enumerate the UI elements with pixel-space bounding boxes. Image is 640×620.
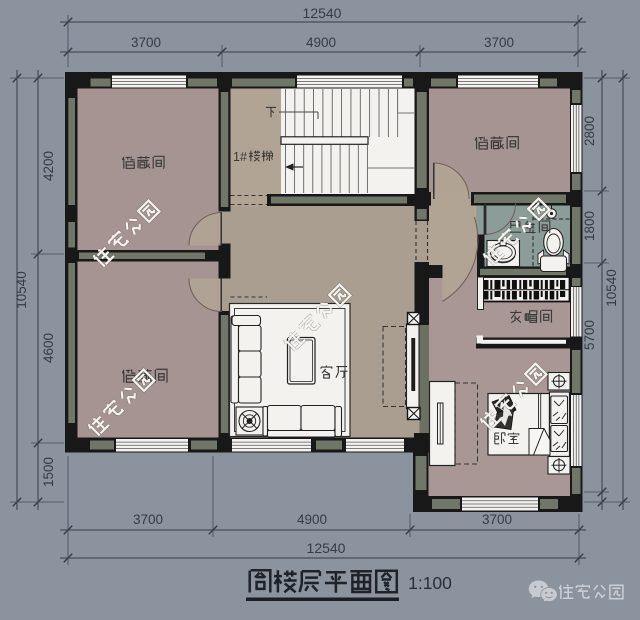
- svg-text:5700: 5700: [582, 320, 597, 350]
- svg-text:3700: 3700: [131, 35, 161, 50]
- svg-text:1500: 1500: [41, 457, 56, 487]
- svg-text:10540: 10540: [14, 271, 29, 309]
- svg-text:3700: 3700: [484, 35, 514, 50]
- svg-text:2800: 2800: [582, 116, 597, 146]
- svg-text:4600: 4600: [41, 333, 56, 363]
- svg-text:1#: 1#: [233, 150, 247, 164]
- svg-text:4900: 4900: [297, 512, 327, 527]
- svg-text:1:100: 1:100: [408, 573, 452, 593]
- svg-text:10540: 10540: [604, 269, 619, 307]
- svg-text:4900: 4900: [306, 35, 336, 50]
- svg-text:12540: 12540: [303, 5, 342, 21]
- svg-text:12540: 12540: [307, 540, 346, 556]
- svg-text:3700: 3700: [133, 512, 163, 527]
- svg-text:4200: 4200: [41, 151, 56, 181]
- svg-text:1800: 1800: [582, 211, 597, 241]
- svg-text:3700: 3700: [482, 512, 512, 527]
